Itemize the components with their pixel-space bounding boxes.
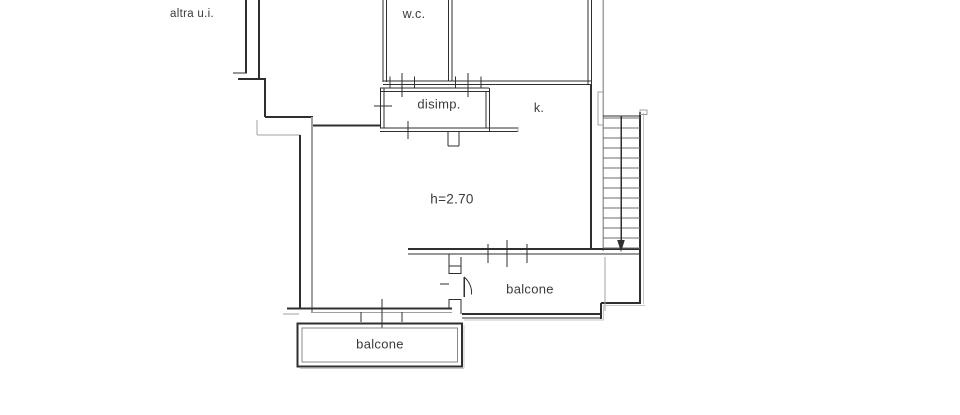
label-balcony-right: balcone (506, 282, 554, 297)
label-ceiling-height: h=2.70 (430, 192, 473, 207)
label-disimpegno: disimp. (417, 97, 460, 112)
label-other-unit: altra u.i. (170, 8, 214, 20)
label-wc: w.c. (403, 7, 426, 21)
floor-plan-canvas (0, 0, 960, 415)
door-swing-arc (464, 277, 472, 295)
label-balcony-bottom: balcone (356, 337, 404, 352)
floor-plan: altra u.i. w.c. disimp. k. h=2.70 balcon… (0, 0, 960, 415)
stairs-direction-arrow (617, 240, 625, 252)
label-kitchen: k. (534, 101, 544, 115)
